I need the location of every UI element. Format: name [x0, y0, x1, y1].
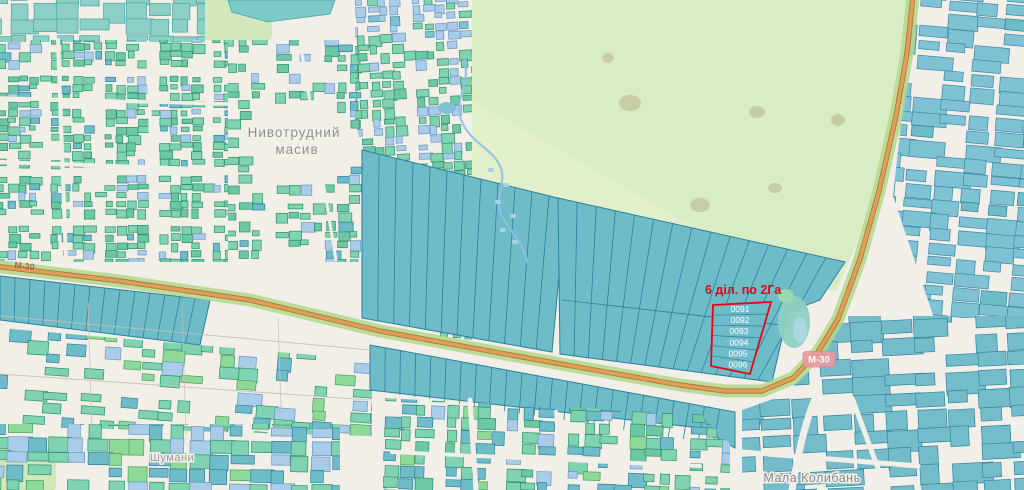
road-shield-label: М-30 — [808, 355, 830, 366]
map-canvas[interactable]: Нивотрудний масив Шумани Мала Колибань М… — [0, 0, 1024, 490]
map-viewport[interactable]: Нивотрудний масив Шумани Мала Колибань М… — [0, 0, 1024, 490]
area-label-line2: масив — [275, 142, 318, 157]
place-label-shumany: Шумани — [150, 452, 194, 464]
annotation-text: 6 діл. по 2Га — [705, 283, 782, 297]
parcel-number: 0096 — [729, 360, 748, 370]
parcel-number: 0094 — [730, 337, 749, 347]
road-ref-m30-left: М-30 — [14, 260, 35, 272]
area-label-line1: Нивотрудний — [248, 125, 341, 140]
place-label-mala-kolyban: Мала Колибань — [763, 471, 860, 485]
road-shield-m30: М-30 — [803, 352, 835, 368]
parcel-number: 0095 — [729, 348, 748, 358]
selected-parcel-numbers: 0091 0092 0093 0094 0095 0096 — [729, 304, 750, 370]
parcel-number: 0092 — [731, 315, 750, 325]
parcel-number: 0093 — [730, 326, 749, 336]
parcel-number: 0091 — [731, 304, 750, 314]
